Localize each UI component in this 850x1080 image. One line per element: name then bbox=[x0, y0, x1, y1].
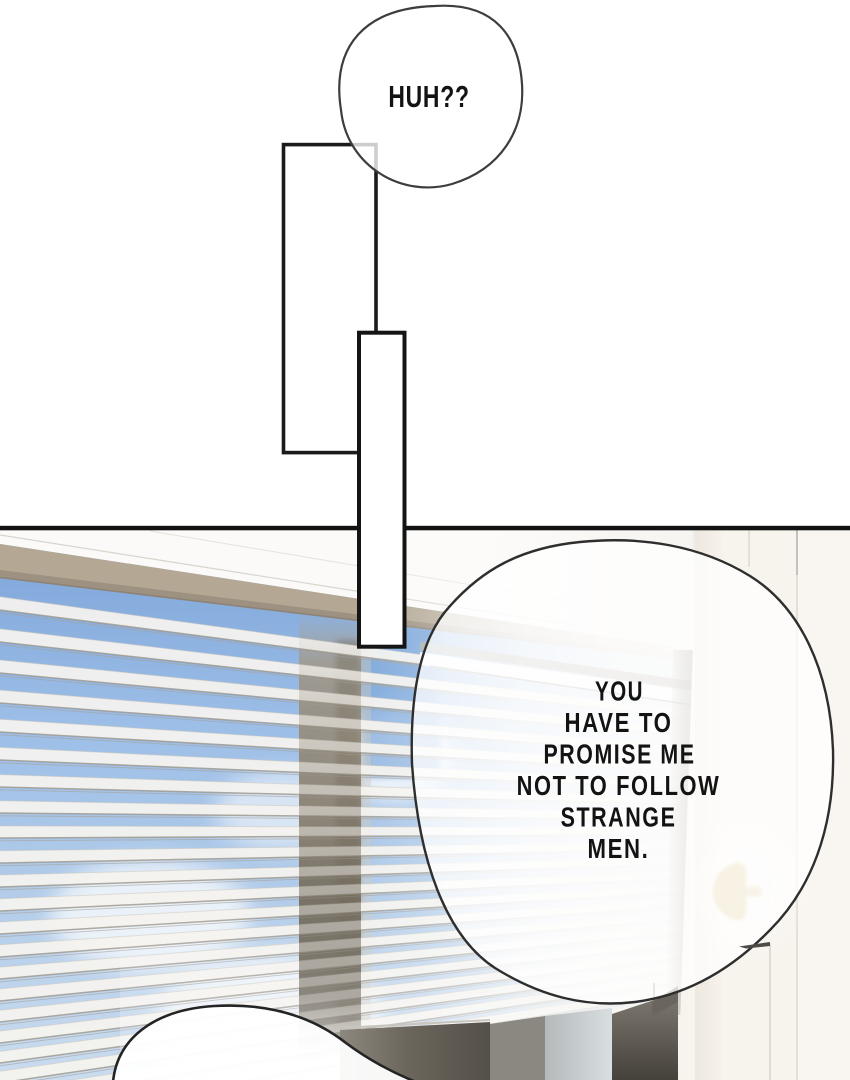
svg-text:NOT TO FOLLOW: NOT TO FOLLOW bbox=[517, 772, 721, 802]
svg-text:HAVE TO: HAVE TO bbox=[565, 708, 673, 739]
svg-text:MEN.: MEN. bbox=[588, 834, 650, 865]
svg-text:PROMISE ME: PROMISE ME bbox=[544, 740, 696, 770]
svg-text:YOU: YOU bbox=[595, 677, 644, 708]
svg-text:STRANGE: STRANGE bbox=[561, 803, 677, 833]
svg-text:HUH??: HUH?? bbox=[388, 79, 469, 114]
